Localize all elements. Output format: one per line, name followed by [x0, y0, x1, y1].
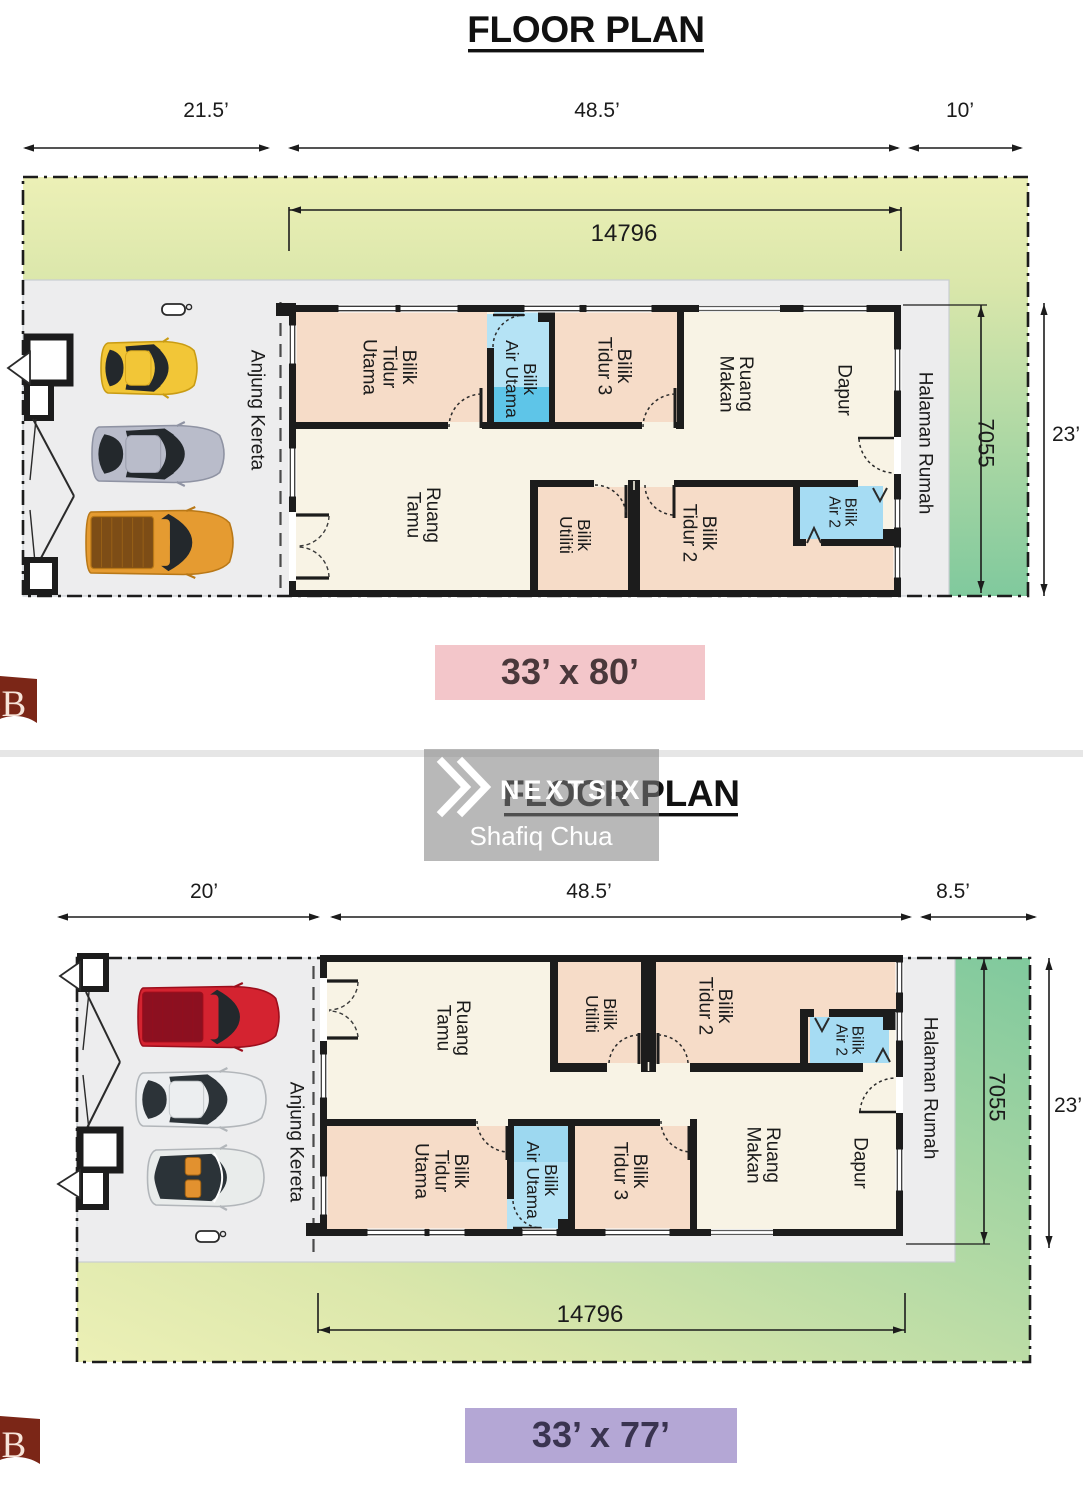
svg-text:Shafiq Chua: Shafiq Chua — [469, 821, 613, 851]
svg-text:20’: 20’ — [190, 880, 218, 903]
svg-text:48.5’: 48.5’ — [566, 880, 612, 903]
svg-text:3B: 3B — [0, 684, 26, 725]
svg-text:23’: 23’ — [1054, 1094, 1082, 1117]
svg-text:14796: 14796 — [591, 220, 658, 247]
svg-text:BilikAir 2: BilikAir 2 — [833, 1024, 866, 1056]
svg-text:48.5’: 48.5’ — [574, 99, 620, 122]
svg-text:7055: 7055 — [984, 1073, 1009, 1122]
svg-text:Dapur: Dapur — [849, 1137, 870, 1189]
svg-text:33’ x 77’: 33’ x 77’ — [532, 1414, 670, 1455]
svg-text:BilikAir 2: BilikAir 2 — [826, 496, 859, 528]
svg-text:21.5’: 21.5’ — [183, 99, 229, 122]
svg-text:RuangTamu: RuangTamu — [433, 1000, 474, 1056]
svg-text:NEXTSIX: NEXTSIX — [500, 775, 644, 805]
svg-text:RuangTamu: RuangTamu — [403, 487, 444, 543]
svg-text:BilikUtiliti: BilikUtiliti — [582, 995, 620, 1033]
svg-text:10’: 10’ — [946, 99, 974, 122]
svg-text:7055: 7055 — [973, 419, 998, 468]
svg-text:Anjung Kereta: Anjung Kereta — [285, 1082, 306, 1203]
svg-text:33’ x 80’: 33’ x 80’ — [501, 651, 639, 692]
svg-text:FLOOR PLAN: FLOOR PLAN — [467, 9, 704, 50]
svg-text:Halaman Rumah: Halaman Rumah — [914, 372, 935, 515]
svg-text:14796: 14796 — [557, 1301, 624, 1328]
svg-text:23’: 23’ — [1052, 423, 1080, 446]
svg-text:8.5’: 8.5’ — [936, 880, 970, 903]
svg-text:BilikUtiliti: BilikUtiliti — [556, 516, 594, 554]
svg-text:Anjung Kereta: Anjung Kereta — [246, 350, 267, 471]
svg-text:3B: 3B — [0, 1425, 26, 1466]
svg-text:Dapur: Dapur — [833, 364, 854, 416]
svg-text:RuangMakan: RuangMakan — [743, 1126, 784, 1183]
svg-text:Halaman Rumah: Halaman Rumah — [919, 1017, 940, 1160]
svg-text:RuangMakan: RuangMakan — [716, 355, 757, 412]
